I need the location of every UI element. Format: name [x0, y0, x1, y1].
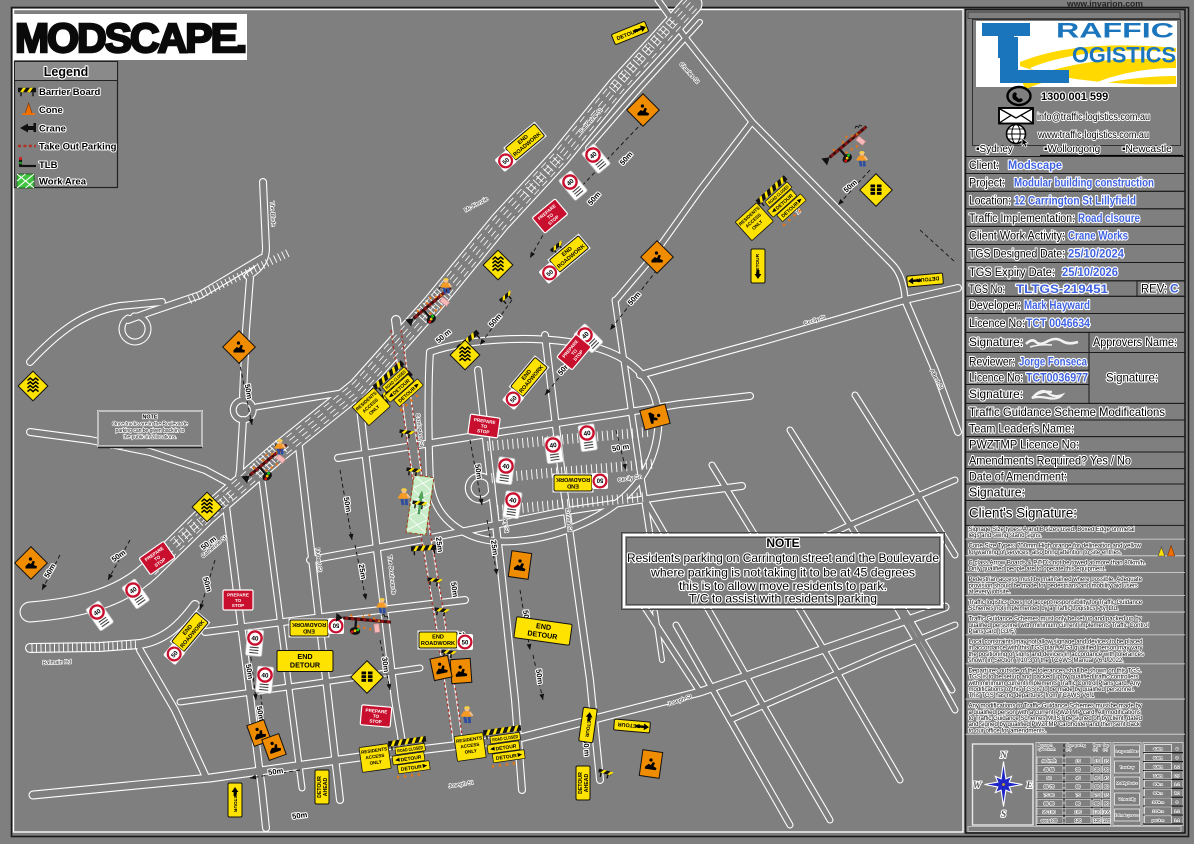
svg-text:40: 40	[502, 463, 510, 471]
svg-text:REV:: REV:	[1141, 282, 1167, 296]
svg-text:Licence No:: Licence No:	[969, 371, 1023, 385]
svg-text:END: END	[432, 634, 444, 640]
svg-text:1.1: 1.1	[1174, 817, 1180, 822]
svg-text:Signature:: Signature:	[969, 387, 1023, 401]
svg-text:Balmain Rd: Balmain Rd	[42, 659, 71, 666]
svg-text:Traffic logistics does not acc: Traffic logistics does not accept respon…	[969, 600, 1143, 606]
svg-text:over 100: over 100	[1041, 818, 1058, 823]
svg-text:Any modifications to Traffic G: Any modifications to Traffic Guidance Sc…	[969, 704, 1142, 710]
svg-text:TCT0036977: TCT0036977	[1026, 373, 1088, 385]
svg-text:30: 30	[1104, 767, 1109, 772]
svg-text:Residents parking on Carringto: Residents parking on Carrington street a…	[627, 551, 939, 565]
svg-text:Vulnerability: Vulnerability	[1118, 798, 1136, 802]
svg-text:Pedestrian access must be main: Pedestrian access must be maintained whe…	[969, 577, 1143, 583]
svg-text:1.2: 1.2	[1174, 764, 1180, 769]
svg-text:DETOUR: DETOUR	[755, 253, 761, 274]
svg-text:ROADWORK: ROADWORK	[421, 641, 455, 647]
svg-text:per km: per km	[1152, 817, 1165, 822]
svg-text:Client Work Activity:: Client Work Activity:	[969, 231, 1065, 243]
svg-text:15: 15	[1104, 758, 1109, 763]
svg-text:Cone: Cone	[39, 105, 63, 116]
svg-text:Modular building construction: Modular building construction	[1014, 178, 1154, 190]
svg-text:Longs and Bars: Longs and Bars	[1116, 750, 1139, 754]
svg-text:AHEAD: AHEAD	[584, 774, 590, 793]
svg-text:25/10/2024: 25/10/2024	[1068, 249, 1125, 261]
svg-text:60km: 60km	[1153, 764, 1163, 769]
svg-text:shown in Section 7.10.3 of the: shown in Section 7.10.3 of the TCAWS Man…	[969, 658, 1125, 664]
svg-text:TCT 0046634: TCT 0046634	[1026, 318, 1091, 330]
svg-text:45: 45	[1076, 775, 1081, 780]
svg-text:120: 120	[1075, 818, 1083, 823]
svg-text:0.9: 0.9	[1174, 773, 1180, 778]
svg-text:Signature:: Signature:	[969, 486, 1025, 500]
svg-text:50km: 50km	[1153, 755, 1163, 760]
svg-text:40: 40	[261, 672, 269, 680]
svg-text:ROADWORK: ROADWORK	[556, 476, 590, 482]
svg-text:MODSCAPE.: MODSCAPE.	[15, 15, 245, 61]
svg-text:80km: 80km	[1153, 782, 1163, 787]
svg-text:50: 50	[332, 622, 339, 628]
svg-text:95-100: 95-100	[1042, 809, 1056, 814]
svg-text:Approvers Name:: Approvers Name:	[1093, 335, 1177, 349]
svg-text:T/C to assist with residents p: T/C to assist with residents parking	[689, 592, 877, 606]
svg-text:to Traffic Guidance Schemes MU: to Traffic Guidance Schemes MUST be sign…	[969, 716, 1142, 722]
svg-text:Travelway: Travelway	[1120, 766, 1135, 770]
svg-text:40km: 40km	[1153, 746, 1163, 751]
svg-text:DETOUR: DETOUR	[290, 660, 321, 669]
svg-text:1300 001 599: 1300 001 599	[1041, 91, 1108, 103]
svg-text:modifications to this TGS is t: modifications to this TGS is to be made …	[969, 687, 1135, 693]
svg-text:Client's Signature:: Client's Signature:	[969, 505, 1077, 520]
svg-text:40: 40	[251, 635, 259, 643]
svg-text:Cone Size Types: 700mm High or: Cone Size Types: 700mm High orange for d…	[969, 544, 1142, 550]
svg-text:ROADWORK: ROADWORK	[292, 621, 326, 627]
svg-text:60: 60	[1076, 784, 1081, 789]
svg-text:Only qualified people are to o: Only qualified people are to operate thi…	[969, 567, 1107, 573]
svg-text:OGISTICS: OGISTICS	[1072, 43, 1176, 68]
svg-text:60: 60	[1095, 784, 1100, 789]
svg-text:45: 45	[1095, 775, 1100, 780]
svg-text:RAFFIC: RAFFIC	[1056, 19, 1174, 43]
svg-text:Schemes not implemented by a T: Schemes not implemented by a Traffic Log…	[969, 606, 1120, 612]
svg-text:120: 120	[1094, 818, 1102, 823]
svg-text:parking can be given back in t: parking can be given back in to	[116, 428, 185, 434]
svg-text:legs and swing stand signs.: legs and swing stand signs.	[969, 533, 1043, 539]
svg-text:Crane: Crane	[39, 124, 66, 135]
svg-text:Barrier Board: Barrier Board	[39, 87, 100, 98]
svg-text:120: 120	[1094, 809, 1102, 814]
svg-text:NOTE: NOTE	[143, 415, 158, 421]
svg-text:C class Arrow Boards & P.T.D's: C class Arrow Boards & P.T.D's not be to…	[969, 560, 1146, 566]
svg-text:90: 90	[1076, 801, 1081, 806]
svg-text:NOTE: NOTE	[766, 536, 799, 550]
svg-text:info@traffic-logistics.com.au: info@traffic-logistics.com.au	[1037, 111, 1150, 123]
svg-text:Local constraints may not allo: Local constraints may not allow signage …	[969, 640, 1143, 646]
svg-text:Mark Hayward: Mark Hayward	[1024, 300, 1090, 312]
svg-text:Signage Size types: A and B si: Signage Size types: A and B sizes used. …	[969, 527, 1135, 533]
svg-text:TGS Designed Date:: TGS Designed Date:	[969, 249, 1065, 261]
svg-text:Traffic Guidance Schemes must: Traffic Guidance Schemes must only be se…	[969, 617, 1142, 623]
svg-text:N: N	[999, 751, 1008, 761]
svg-text:E: E	[1025, 781, 1032, 791]
svg-text:40: 40	[509, 497, 517, 505]
svg-text:50: 50	[596, 477, 603, 483]
svg-text:75: 75	[1095, 792, 1100, 797]
svg-text:Project:: Project:	[969, 178, 1005, 190]
svg-text:Road clsoure: Road clsoure	[1078, 213, 1140, 225]
svg-text:Once trucks are in the Bouleva: Once trucks are in the Boulevarde	[112, 422, 188, 428]
svg-text:the public in 2 locations.: the public in 2 locations.	[123, 435, 176, 441]
svg-text:85-90: 85-90	[1044, 801, 1055, 806]
svg-text:Client:: Client:	[969, 160, 999, 172]
svg-text:Work Area: Work Area	[39, 177, 87, 188]
svg-text:▪Wollongong: ▪Wollongong	[1044, 144, 1100, 155]
svg-text:TGS Expiry Date:: TGS Expiry Date:	[969, 267, 1055, 279]
svg-text:105: 105	[1075, 809, 1083, 814]
svg-text:30: 30	[1095, 767, 1100, 772]
svg-text:STOP: STOP	[232, 603, 244, 608]
svg-text:Traffic Implementation:: Traffic Implementation:	[969, 213, 1075, 225]
svg-text:where parking is not taking it: where parking is not taking it to be at …	[650, 566, 915, 580]
svg-text:65-70: 65-70	[1044, 784, 1055, 789]
svg-text:Developer:: Developer:	[969, 300, 1021, 312]
svg-text:provision should be made for p: provision should be made for pedestrians…	[969, 583, 1138, 589]
svg-text:15: 15	[1076, 758, 1081, 763]
svg-text:7.0: 7.0	[1174, 791, 1180, 796]
svg-text:at every jobsite.: at every jobsite.	[969, 589, 1011, 595]
svg-text:75: 75	[1076, 792, 1081, 797]
svg-text:TLTGS-219451: TLTGS-219451	[1016, 284, 1109, 296]
svg-text:(m): (m)	[1066, 748, 1071, 752]
svg-text:This TGS has no departures fro: This TGS has no departures from TCAWS V6…	[969, 693, 1096, 699]
svg-text:Jorge Fonseca: Jorge Fonseca	[1019, 357, 1088, 369]
svg-text:Plans card (G3/F): Plans card (G3/F)	[969, 629, 1016, 635]
svg-text:and signed by qualified PWZTMP: and signed by qualified PWZTMP cardholde…	[969, 722, 1141, 728]
svg-text:45: 45	[1104, 775, 1109, 780]
svg-text:to our office for amendments.: to our office for amendments.	[969, 728, 1047, 734]
svg-text:a qualified person with a curr: a qualified person with a current PWZTMP…	[969, 710, 1141, 716]
svg-text:Reviewer:: Reviewer:	[969, 355, 1015, 369]
svg-text:Estimate process: Estimate process	[1115, 814, 1140, 818]
svg-text:45-55: 45-55	[1044, 767, 1055, 772]
svg-text:1.2: 1.2	[1174, 782, 1180, 787]
svg-text:END: END	[303, 628, 315, 634]
svg-text:qualified personnel with minim: qualified personnel with minimum current…	[969, 623, 1149, 629]
svg-text:Legend: Legend	[44, 65, 88, 79]
svg-text:75: 75	[1104, 792, 1109, 797]
svg-text:Team Leader's Name:: Team Leader's Name:	[969, 422, 1074, 436]
svg-text:W: W	[973, 781, 982, 791]
svg-text:90km: 90km	[1153, 791, 1163, 796]
svg-text:the positioning of signs and d: the positioning of signs and devices in …	[969, 652, 1144, 658]
svg-text:90: 90	[1104, 801, 1109, 806]
svg-text:C: C	[1170, 282, 1179, 296]
svg-text:70km: 70km	[1153, 773, 1163, 778]
svg-text:(m): (m)	[1093, 748, 1098, 752]
svg-text:S: S	[1001, 810, 1006, 820]
svg-text:25/10/2026: 25/10/2026	[1062, 267, 1118, 279]
svg-text:12 Carrington St Lillyfield: 12 Carrington St Lillyfield	[1014, 195, 1136, 207]
svg-text:120: 120	[1103, 818, 1111, 823]
svg-text:Mobility/Device: Mobility/Device	[1116, 782, 1138, 786]
svg-text:60: 60	[1104, 784, 1109, 789]
svg-text:Signature:: Signature:	[969, 335, 1023, 349]
svg-text:Modscape: Modscape	[1008, 160, 1062, 172]
svg-text:Location:: Location:	[969, 195, 1011, 207]
svg-text:30: 30	[1076, 767, 1081, 772]
svg-text:TLB: TLB	[39, 160, 58, 171]
svg-text:100km: 100km	[1152, 800, 1165, 805]
svg-text:AHEAD: AHEAD	[323, 778, 329, 797]
svg-text:40: 40	[549, 442, 557, 450]
svg-text:in accordance with this TGS pl: in accordance with this TGS plan. A G3 q…	[969, 646, 1143, 652]
svg-text:with minimum current implement: with minimum current implements Traffic …	[968, 681, 1141, 687]
svg-text:Date of Amendment:: Date of Amendment:	[969, 470, 1067, 484]
svg-text:40 km/h: 40 km/h	[1042, 758, 1058, 763]
svg-text:www.traffic-logistics.com.au: www.traffic-logistics.com.au	[1037, 129, 1149, 141]
svg-text:1.2: 1.2	[1174, 808, 1180, 813]
svg-text:Take Out Parking: Take Out Parking	[39, 142, 117, 153]
svg-text:Traffic Guidance Scheme Modifi: Traffic Guidance Scheme Modifications	[969, 405, 1165, 419]
svg-text:▪Newcastle: ▪Newcastle	[1122, 144, 1172, 155]
svg-text:50: 50	[462, 640, 469, 646]
svg-text:60: 60	[1047, 775, 1052, 780]
svg-text:PWZTMP Licence No:: PWZTMP Licence No:	[969, 438, 1079, 452]
svg-text:Amendments Required? Yes / No: Amendments Required? Yes / No	[969, 454, 1131, 468]
svg-text:Crane Works: Crane Works	[1068, 231, 1128, 243]
svg-text:Departures outside of the tole: Departures outside of the tolerances sha…	[969, 669, 1142, 675]
svg-text:Licence No:: Licence No:	[969, 318, 1025, 330]
svg-text:DETOUR: DETOUR	[232, 792, 238, 813]
svg-text:TGS is to be set up and packed: TGS is to be set up and packed up by qua…	[969, 675, 1139, 681]
svg-text:Signature:: Signature:	[1106, 371, 1158, 385]
svg-text:END: END	[567, 483, 579, 489]
svg-text:110km: 110km	[1152, 808, 1164, 813]
svg-text:40: 40	[583, 430, 591, 438]
svg-text:75-80: 75-80	[1044, 792, 1055, 797]
svg-text:15: 15	[1095, 758, 1100, 763]
svg-text:90: 90	[1095, 801, 1100, 806]
svg-text:TGS No:: TGS No:	[969, 284, 1005, 296]
svg-text:(m): (m)	[1103, 748, 1108, 752]
svg-text:for warning of services, also: for warning of services, also bring atte…	[969, 550, 1122, 556]
svg-text:speed km/h: speed km/h	[1038, 748, 1056, 752]
svg-text:105: 105	[1103, 809, 1111, 814]
svg-text:▪Sydney: ▪Sydney	[976, 144, 1013, 155]
